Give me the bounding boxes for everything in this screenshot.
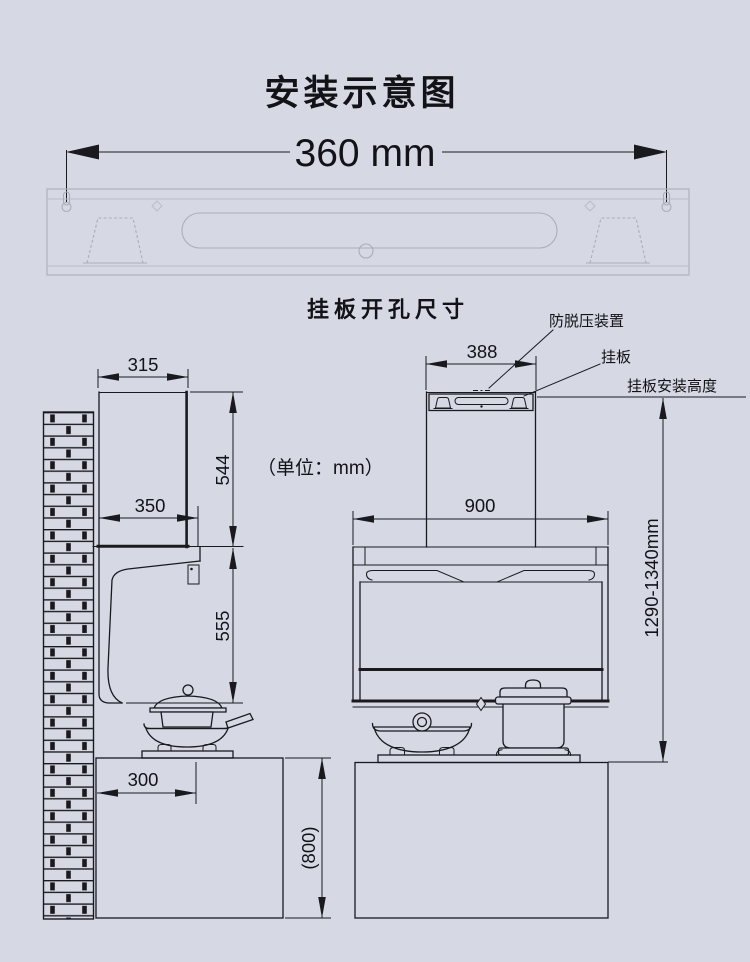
mounting-plate-top-view — [47, 189, 689, 275]
dim-315: 315 — [98, 354, 188, 388]
dim-544-label: 544 — [212, 455, 233, 486]
dim-350: 350 — [99, 495, 198, 547]
side-view-wok — [144, 685, 253, 751]
dim-350-label: 350 — [135, 495, 166, 516]
anti-release-label: 防脱压装置 — [549, 313, 624, 330]
front-view-cooktop — [378, 755, 580, 763]
install-height-label: 挂板安装高度 — [627, 377, 717, 395]
plate-center-hole — [359, 244, 373, 258]
dim-388-label: 388 — [467, 341, 498, 362]
wok-handle — [226, 714, 253, 729]
front-view-wok — [373, 713, 472, 755]
plate-caption: 挂板开孔尺寸 — [307, 297, 469, 322]
plate-diamond-left — [152, 201, 162, 211]
side-view-damper — [188, 565, 199, 584]
page-title: 安装示意图 — [264, 74, 459, 113]
plate-hook-right — [590, 218, 646, 263]
side-view-hood — [99, 547, 200, 703]
pot-lid-knob — [526, 680, 541, 688]
front-view-pot — [496, 680, 572, 756]
dim-300: 300 — [97, 762, 196, 804]
callout-hanging-plate: 挂板 — [524, 348, 631, 396]
plate-slot — [182, 213, 557, 248]
plate-diamond-right — [585, 201, 595, 211]
ignition-flame-mark — [477, 698, 486, 711]
installation-diagram: 安装示意图 360 mm 挂板开孔尺寸 （单位：mm） — [0, 0, 750, 962]
front-plate-slot — [455, 398, 508, 405]
dim-315-label: 315 — [128, 354, 159, 375]
dim-install-height-label: 1290-1340mm — [641, 518, 662, 637]
unit-note: （单位：mm） — [257, 457, 384, 479]
dim-300-label: 300 — [128, 769, 159, 790]
front-view-mounting-plate — [429, 394, 533, 411]
dim-900: 900 — [353, 495, 608, 545]
dim-388: 388 — [426, 341, 536, 390]
brick-wall — [44, 412, 94, 919]
diagram-canvas: 安装示意图 360 mm 挂板开孔尺寸 （单位：mm） — [0, 0, 750, 962]
hole-pitch-value: 360 mm — [295, 132, 436, 175]
front-view-hood — [353, 547, 608, 711]
hanging-plate-label: 挂板 — [601, 348, 631, 366]
front-view-chimney — [427, 391, 536, 548]
dim-555-label: 555 — [212, 611, 233, 642]
dim-800-label: (800) — [298, 826, 319, 869]
front-view-counter — [355, 763, 608, 919]
callout-install-height: 挂板安装高度 — [627, 377, 717, 395]
dim-900-label: 900 — [465, 495, 496, 516]
side-view-cooktop — [142, 751, 233, 758]
side-view-counter — [96, 758, 283, 918]
dim-555: 555 — [126, 548, 243, 703]
dim-800: (800) — [285, 758, 331, 918]
plate-hook-left — [87, 218, 143, 263]
